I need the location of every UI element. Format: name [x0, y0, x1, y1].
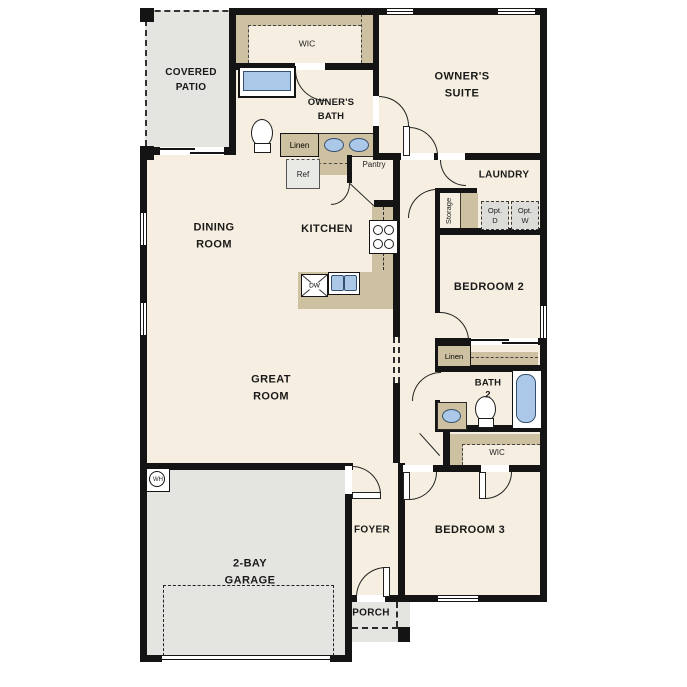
dishwasher-icon: DW — [301, 274, 328, 297]
room-label-owners-suite: OWNER'S SUITE — [435, 69, 490, 102]
wall — [229, 8, 236, 155]
wall — [435, 188, 477, 193]
window — [438, 595, 478, 602]
kitchen-counter — [318, 155, 348, 175]
window — [387, 8, 413, 15]
door-opening — [438, 153, 465, 160]
wall — [373, 8, 379, 155]
linen-closet: Linen — [280, 133, 319, 157]
room-label-bedroom-2: BEDROOM 2 — [454, 279, 524, 296]
counter-dashed-line — [383, 207, 384, 220]
wall — [374, 200, 398, 207]
sink-icon — [349, 138, 369, 152]
slider-door-panel — [471, 339, 509, 341]
room-label-covered-patio: COVERED PATIO — [165, 65, 217, 95]
closet-dashed-line — [471, 357, 538, 358]
garage-door-opening — [162, 655, 330, 662]
room-label-bedroom-3: BEDROOM 3 — [435, 522, 505, 539]
storage-door — [460, 193, 478, 228]
door-opening — [481, 465, 509, 472]
room-label-bed3-wic: WIC — [489, 448, 505, 458]
sink-icon — [324, 138, 344, 152]
cased-opening-dashed — [393, 337, 395, 383]
counter-dashed-line — [383, 253, 384, 270]
porch-dashed-line — [396, 602, 398, 627]
room-label-kitchen: KITCHEN — [301, 221, 353, 238]
wall — [347, 155, 352, 183]
label-pantry: Pantry — [362, 160, 385, 170]
porch-post — [398, 627, 410, 642]
bed3-wic-shelf — [462, 434, 540, 445]
slider-door-panel — [502, 342, 538, 344]
toilet-tank — [478, 418, 494, 428]
room-label-owners-wic: WIC — [299, 38, 316, 49]
window — [140, 213, 147, 245]
room-label-porch: PORCH — [352, 606, 390, 621]
wall — [393, 383, 400, 463]
counter-dashed-line — [318, 163, 348, 164]
bedroom2-closet-shelf — [471, 352, 538, 365]
room-label-owners-bath: OWNER'S BATH — [308, 96, 354, 125]
room-label-dining-room: DINING ROOM — [194, 220, 235, 253]
bathtub — [512, 370, 542, 429]
door-opening — [403, 465, 433, 472]
range-icon — [369, 220, 398, 254]
kitchen-sink-icon — [328, 272, 360, 295]
toilet-tank — [254, 143, 271, 153]
door-opening — [295, 63, 325, 70]
wall — [540, 8, 547, 602]
room-label-great-room: GREAT ROOM — [251, 372, 291, 405]
window — [140, 303, 147, 335]
slider-door-panel — [160, 148, 195, 150]
wall — [140, 463, 147, 662]
shower — [238, 66, 296, 98]
optional-washer: Opt. W — [511, 201, 539, 230]
water-heater-icon: WH — [146, 468, 170, 492]
refrigerator: Ref — [286, 159, 320, 189]
label-storage: Storage — [444, 198, 454, 224]
door-opening — [345, 466, 352, 494]
room-label-bath-2: BATH 2 — [475, 378, 501, 403]
window — [498, 8, 535, 15]
sink-icon — [442, 409, 461, 423]
linen-closet: Linen — [437, 345, 471, 367]
room-label-laundry: LAUNDRY — [479, 168, 530, 183]
room-label-garage: 2-BAY GARAGE — [225, 556, 276, 589]
wall — [140, 463, 353, 470]
garage-door-dashed-outline — [163, 585, 334, 656]
wall-corner-post — [140, 8, 154, 22]
cased-opening-dashed — [398, 337, 400, 383]
slider-door-panel — [190, 152, 224, 154]
wall-corner-post — [140, 146, 154, 160]
room-label-foyer: FOYER — [354, 523, 390, 538]
optional-dryer: Opt. D — [481, 201, 509, 230]
floor-plan: Linen Ref DW Opt. D Opt. W Linen WH COVE… — [0, 0, 687, 687]
window — [540, 306, 547, 338]
wic-shelf — [248, 14, 361, 26]
